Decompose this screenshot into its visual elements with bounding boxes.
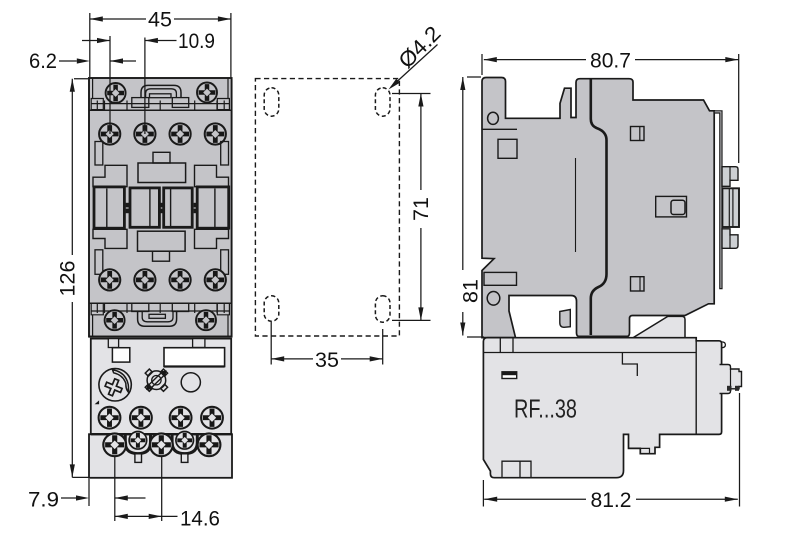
svg-text:7.9: 7.9 — [28, 487, 59, 511]
svg-text:71: 71 — [409, 197, 433, 221]
svg-text:14.6: 14.6 — [180, 506, 220, 530]
svg-text:80.7: 80.7 — [590, 48, 631, 72]
svg-text:35: 35 — [315, 348, 339, 372]
svg-text:10.9: 10.9 — [178, 29, 215, 53]
svg-text:RF...38: RF...38 — [514, 396, 577, 424]
svg-text:81: 81 — [459, 279, 483, 303]
svg-text:81.2: 81.2 — [591, 488, 632, 512]
svg-text:126: 126 — [56, 261, 80, 297]
svg-text:6.2: 6.2 — [29, 49, 57, 73]
svg-text:45: 45 — [148, 8, 172, 32]
